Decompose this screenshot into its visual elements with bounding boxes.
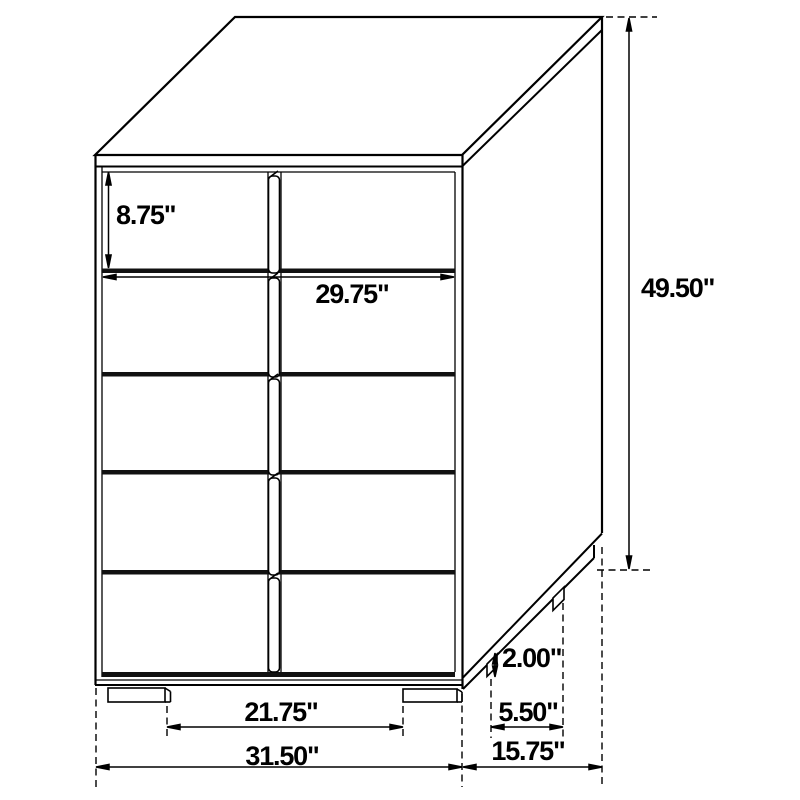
drawer-handle (269, 278, 280, 377)
dim-label-drawer-height: 8.75" (116, 202, 175, 229)
cabinet-outline (95, 17, 602, 689)
chest-line-drawing (0, 0, 800, 800)
dim-label-drawer-width: 29.75" (315, 281, 388, 308)
drawer-handle (269, 176, 280, 273)
dim-label-overall-depth: 15.75" (491, 738, 564, 765)
dim-label-overall-height: 49.50" (641, 275, 714, 302)
dim-line-drawer-height (106, 172, 111, 268)
dim-line-overall-height (626, 18, 631, 569)
front-left-foot (108, 688, 165, 702)
dim-label-overall-width: 31.50" (245, 743, 318, 770)
extension-lines (96, 17, 657, 787)
drawer-handle (269, 379, 280, 475)
top-face (95, 17, 602, 155)
dim-label-side-foot-spacing: 5.50" (498, 699, 557, 726)
drawer-handles (269, 171, 280, 672)
chest-dimension-diagram: 8.75" 29.75" 49.50" 2.00" 5.50" 21.75" 3… (0, 0, 800, 800)
front-right-foot (403, 689, 457, 702)
dim-label-front-foot-spacing: 21.75" (244, 699, 317, 726)
drawer-handle (269, 478, 280, 575)
dim-label-foot-height: 2.00" (502, 645, 561, 672)
drawer-handle (269, 578, 280, 672)
